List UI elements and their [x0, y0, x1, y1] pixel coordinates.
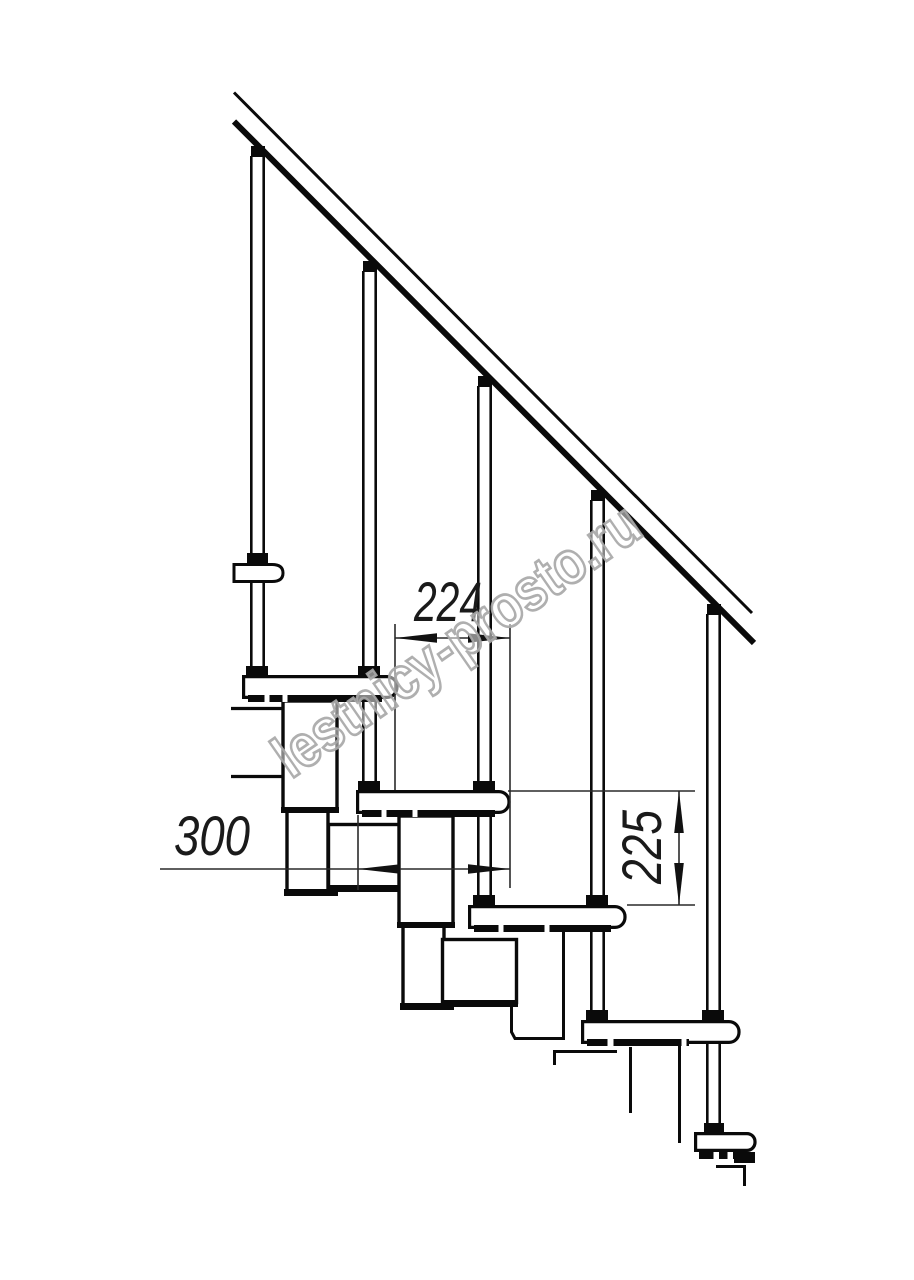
svg-text:225: 225 — [610, 809, 673, 884]
svg-text:300: 300 — [174, 804, 250, 867]
